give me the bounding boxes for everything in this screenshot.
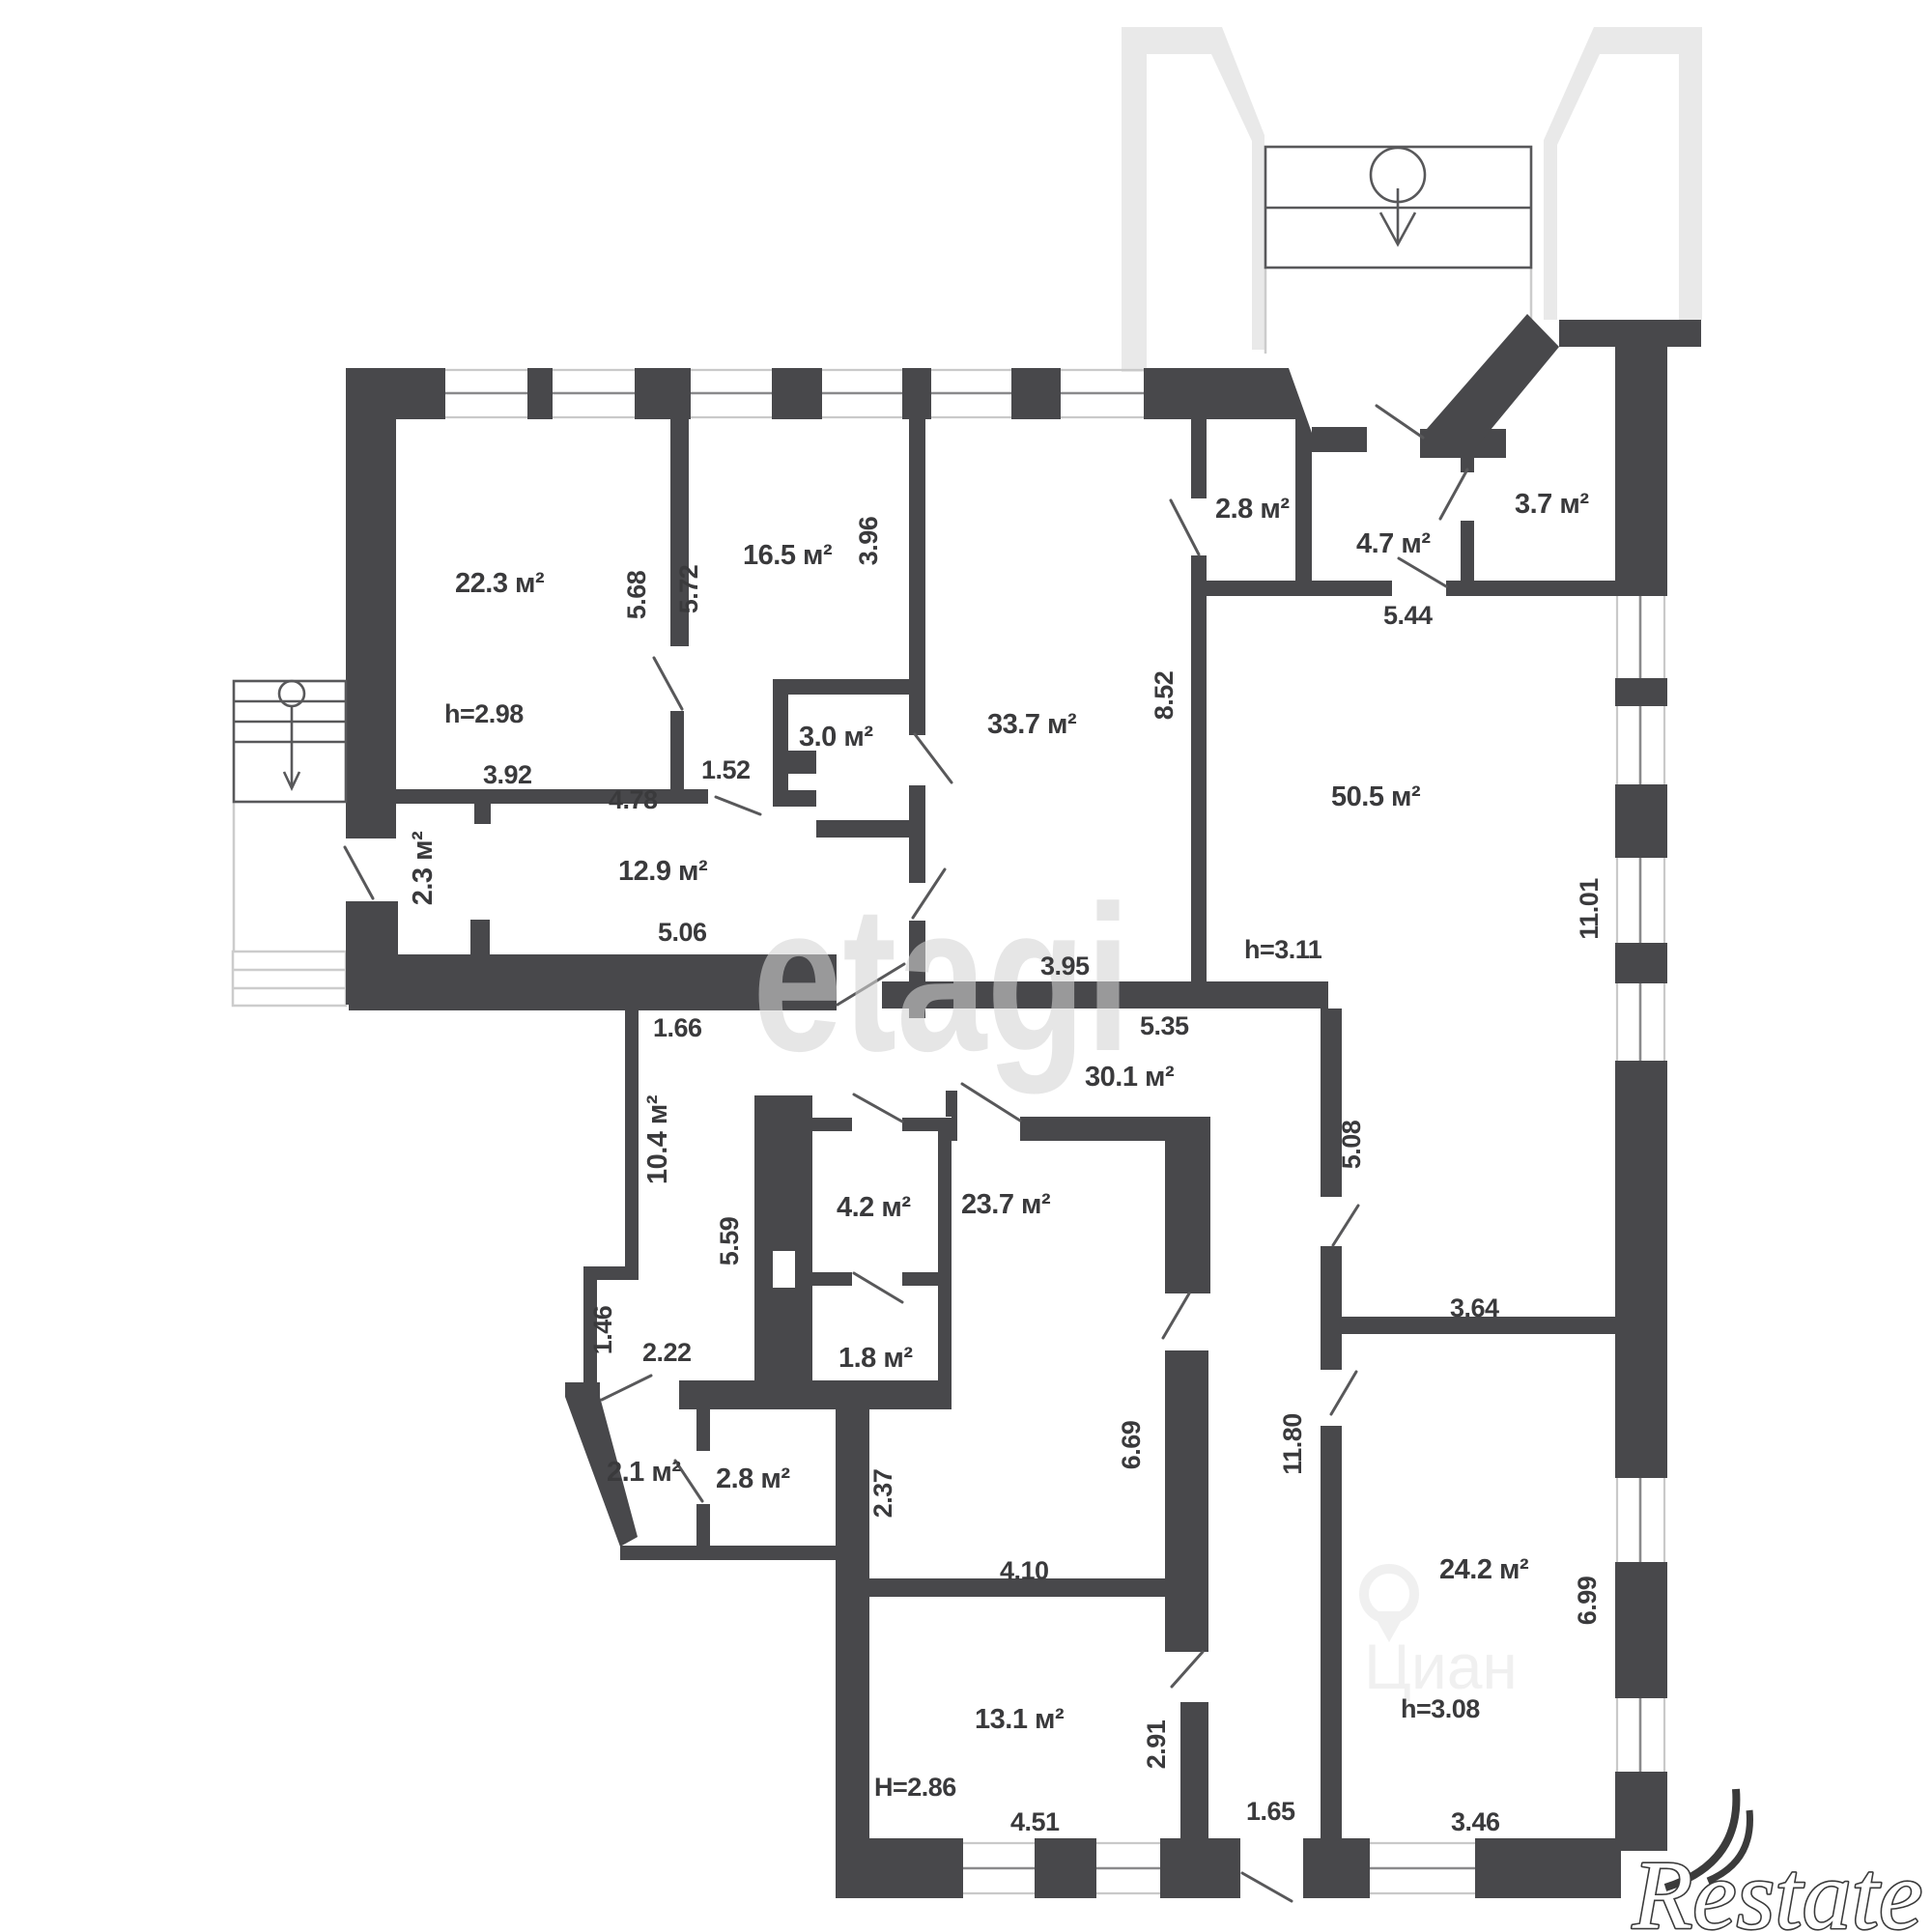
svg-text:5.59: 5.59 [715,1216,744,1265]
svg-text:1.66: 1.66 [653,1013,702,1042]
svg-text:3.7 м²: 3.7 м² [1515,489,1589,520]
svg-text:2.3 м²: 2.3 м² [408,831,439,905]
svg-text:4.2 м²: 4.2 м² [837,1192,911,1223]
svg-text:22.3 м²: 22.3 м² [455,568,545,599]
svg-text:1.65: 1.65 [1246,1797,1295,1826]
svg-text:2.8 м²: 2.8 м² [1215,494,1290,525]
svg-text:5.06: 5.06 [658,918,707,947]
svg-text:30.1 м²: 30.1 м² [1085,1062,1175,1093]
svg-text:1.8 м²: 1.8 м² [838,1343,913,1374]
svg-text:3.64: 3.64 [1450,1293,1499,1322]
svg-text:13.1 м²: 13.1 м² [975,1704,1065,1735]
svg-text:11.01: 11.01 [1575,878,1604,940]
svg-text:6.99: 6.99 [1573,1576,1602,1625]
svg-text:h=3.11: h=3.11 [1244,935,1322,964]
svg-text:h=3.08: h=3.08 [1401,1694,1480,1723]
svg-text:3.46: 3.46 [1451,1807,1500,1836]
svg-text:Циан: Циан [1364,1631,1518,1702]
svg-text:12.9 м²: 12.9 м² [618,856,708,887]
svg-text:3.0 м²: 3.0 м² [799,722,873,753]
svg-text:10.4 м²: 10.4 м² [642,1094,673,1184]
svg-text:5.68: 5.68 [622,570,651,619]
svg-text:1.52: 1.52 [701,755,751,784]
svg-text:Restate: Restate [1632,1841,1922,1932]
svg-text:5.35: 5.35 [1140,1011,1189,1040]
svg-text:24.2 м²: 24.2 м² [1439,1554,1529,1585]
svg-text:3.95: 3.95 [1040,952,1090,980]
svg-text:16.5 м²: 16.5 м² [743,540,833,571]
svg-text:4.10: 4.10 [1000,1556,1049,1585]
svg-text:4.78: 4.78 [609,785,658,814]
svg-text:50.5 м²: 50.5 м² [1331,781,1421,812]
svg-text:h=2.98: h=2.98 [444,699,524,728]
svg-text:5.44: 5.44 [1383,601,1433,630]
svg-text:3.96: 3.96 [854,516,883,565]
svg-text:H=2.86: H=2.86 [874,1773,956,1802]
svg-text:2.1 м²: 2.1 м² [607,1457,681,1488]
svg-text:6.69: 6.69 [1117,1420,1146,1469]
svg-text:5.08: 5.08 [1337,1120,1366,1169]
svg-text:4.7 м²: 4.7 м² [1356,528,1431,559]
svg-text:2.91: 2.91 [1142,1719,1171,1769]
svg-text:4.51: 4.51 [1010,1807,1060,1836]
svg-text:23.7 м²: 23.7 м² [961,1189,1051,1220]
svg-text:11.80: 11.80 [1278,1413,1307,1475]
svg-text:2.8 м²: 2.8 м² [716,1463,790,1494]
svg-text:3.92: 3.92 [483,760,532,789]
svg-text:1.46: 1.46 [588,1305,617,1354]
svg-text:8.52: 8.52 [1150,671,1179,721]
svg-text:2.37: 2.37 [868,1469,897,1519]
svg-text:5.72: 5.72 [674,565,703,614]
svg-text:33.7 м²: 33.7 м² [987,709,1077,740]
svg-text:2.22: 2.22 [642,1338,692,1367]
